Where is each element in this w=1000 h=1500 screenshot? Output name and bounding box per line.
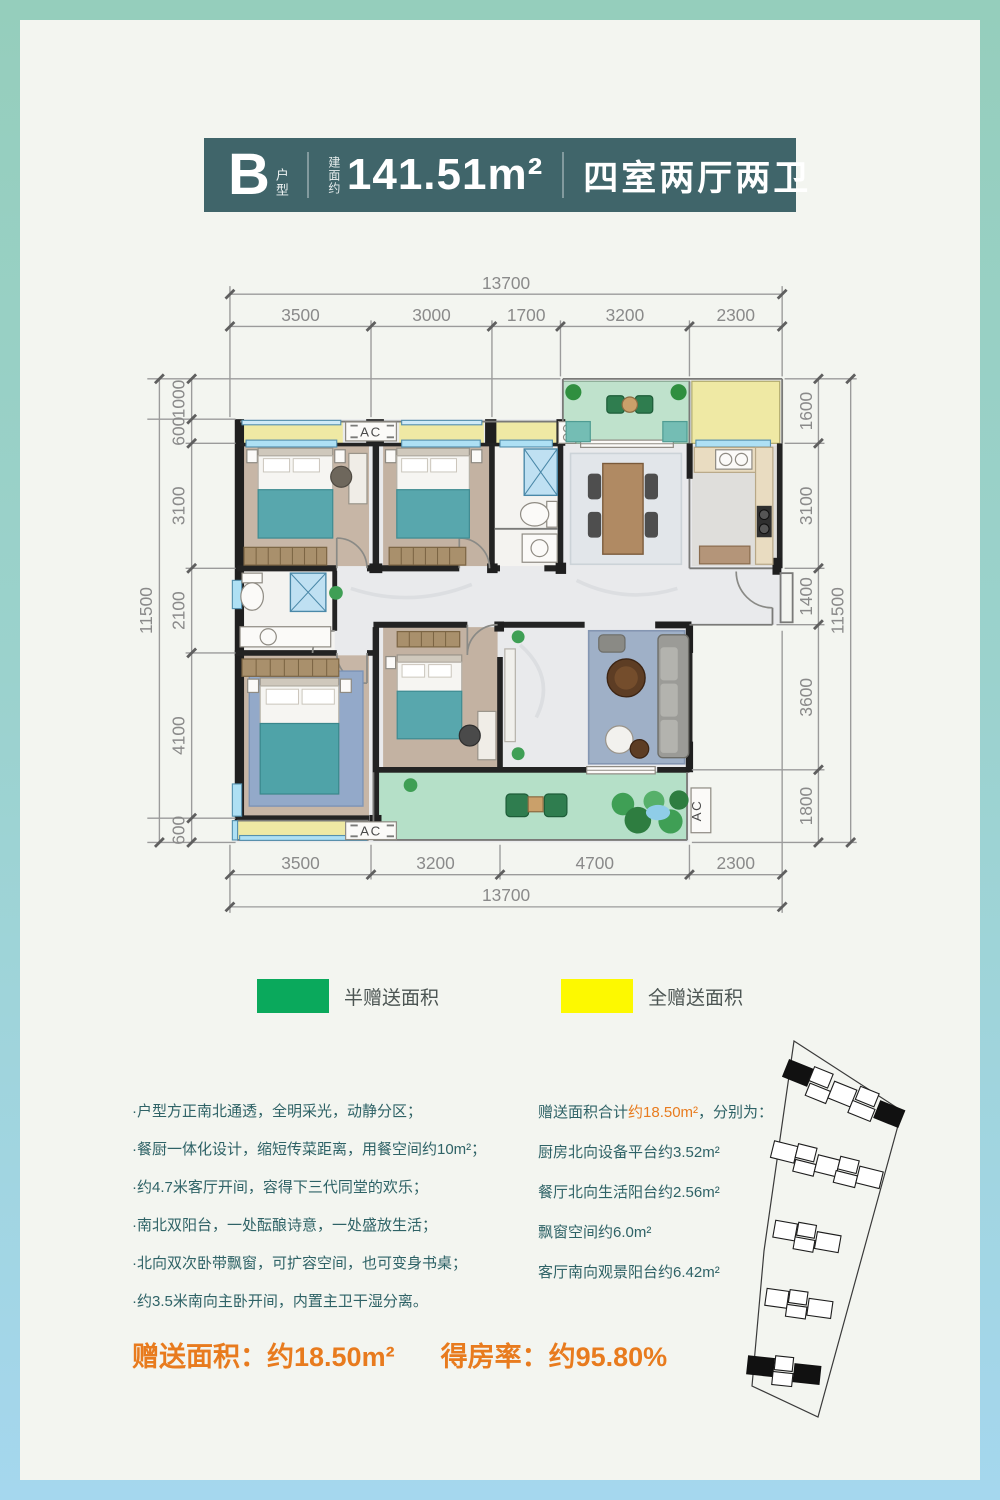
- ac-label-south: AC: [360, 824, 382, 839]
- floor-plan: AC AC AC 3500 3000 1700 3200 2300: [121, 268, 879, 923]
- gift-intro-prefix: 赠送面积合计: [538, 1104, 628, 1121]
- dim-bottom-1: 3500: [281, 853, 320, 873]
- dim-top-5: 2300: [717, 305, 756, 325]
- site-building-3: [771, 1218, 842, 1256]
- dim-top-total: 13700: [482, 273, 530, 293]
- dim-left-2: 600: [168, 417, 188, 446]
- summary-usable-ratio: 得房率：约95.80%: [441, 1335, 668, 1374]
- gradient-border-frame: B 户型 建面约 141.51m² 四室两厅两卫: [0, 0, 1000, 1500]
- dim-right-1: 1600: [796, 392, 816, 431]
- feature-item: ·约3.5米南向主卧开间，内置主卫干湿分离。: [132, 1283, 532, 1321]
- equipment-platform: [692, 381, 780, 443]
- legend-item-full-gift: 全赠送面积: [561, 979, 743, 1013]
- dim-top-1: 3500: [281, 305, 320, 325]
- full-gift-label: 全赠送面积: [648, 983, 743, 1010]
- dim-bottom-total: 13700: [482, 885, 530, 905]
- dim-bottom-4: 2300: [717, 853, 756, 873]
- site-plan: [742, 1033, 966, 1425]
- area-prefix-label: 建面约: [328, 156, 340, 195]
- dim-top-4: 3200: [606, 305, 645, 325]
- ac-label-east: AC: [689, 800, 704, 822]
- dim-right-3: 1400: [796, 577, 816, 616]
- dim-left-5: 4100: [168, 716, 188, 755]
- dim-bottom-2: 3200: [416, 853, 455, 873]
- feature-item: ·户型方正南北通透，全明采光，动静分区；: [132, 1093, 532, 1131]
- dim-left-6: 600: [168, 816, 188, 845]
- feature-item: ·北向双次卧带飘窗，可扩容空间，也可变身书桌；: [132, 1245, 532, 1283]
- room-configuration: 四室两厅两卫: [583, 150, 811, 201]
- feature-item: ·约4.7米客厅开间，容得下三代同堂的欢乐；: [132, 1169, 532, 1207]
- dim-top-2: 3000: [412, 305, 451, 325]
- full-gift-swatch: [561, 979, 633, 1013]
- dim-top-3: 1700: [507, 305, 546, 325]
- unit-type-letter: B: [228, 146, 270, 204]
- dim-bottom-3: 4700: [575, 853, 614, 873]
- banner-divider: [307, 152, 309, 198]
- unit-type-suffix: 户型: [275, 168, 288, 198]
- legend-item-half-gift: 半赠送面积: [257, 979, 439, 1013]
- banner-divider: [562, 152, 564, 198]
- site-building-2: [768, 1138, 885, 1193]
- feature-item: ·餐厨一体化设计，缩短传菜距离，用餐空间约10m²；: [132, 1131, 532, 1169]
- built-area-value: 141.51m²: [347, 150, 543, 200]
- summary-gift-area: 赠送面积：约18.50m²: [132, 1335, 395, 1374]
- poster-page: B 户型 建面约 141.51m² 四室两厅两卫: [20, 20, 980, 1480]
- half-gift-label: 半赠送面积: [344, 983, 439, 1010]
- dim-left-3: 3100: [168, 487, 188, 526]
- dim-left-1: 1000: [168, 380, 188, 419]
- dim-left-total: 11500: [136, 587, 156, 634]
- site-building-highlighted-5: [746, 1353, 822, 1389]
- dim-right-4: 3600: [796, 678, 816, 717]
- ac-label-north: AC: [360, 424, 382, 439]
- site-building-4: [764, 1286, 834, 1322]
- gift-area-legend: 半赠送面积 全赠送面积: [20, 979, 980, 1013]
- dim-right-total: 11500: [827, 587, 847, 634]
- dim-left-4: 2100: [168, 591, 188, 630]
- site-building-highlighted-1: [779, 1057, 907, 1132]
- gift-intro-highlight: 约18.50m²: [628, 1104, 698, 1121]
- unit-header-banner: B 户型 建面约 141.51m² 四室两厅两卫: [204, 138, 796, 212]
- half-gift-swatch: [257, 979, 329, 1013]
- dim-right-2: 3100: [796, 487, 816, 526]
- dim-right-5: 1800: [796, 787, 816, 826]
- feature-list: ·户型方正南北通透，全明采光，动静分区； ·餐厨一体化设计，缩短传菜距离，用餐空…: [132, 1093, 532, 1321]
- feature-item: ·南北双阳台，一处酝酿诗意，一处盛放生活；: [132, 1207, 532, 1245]
